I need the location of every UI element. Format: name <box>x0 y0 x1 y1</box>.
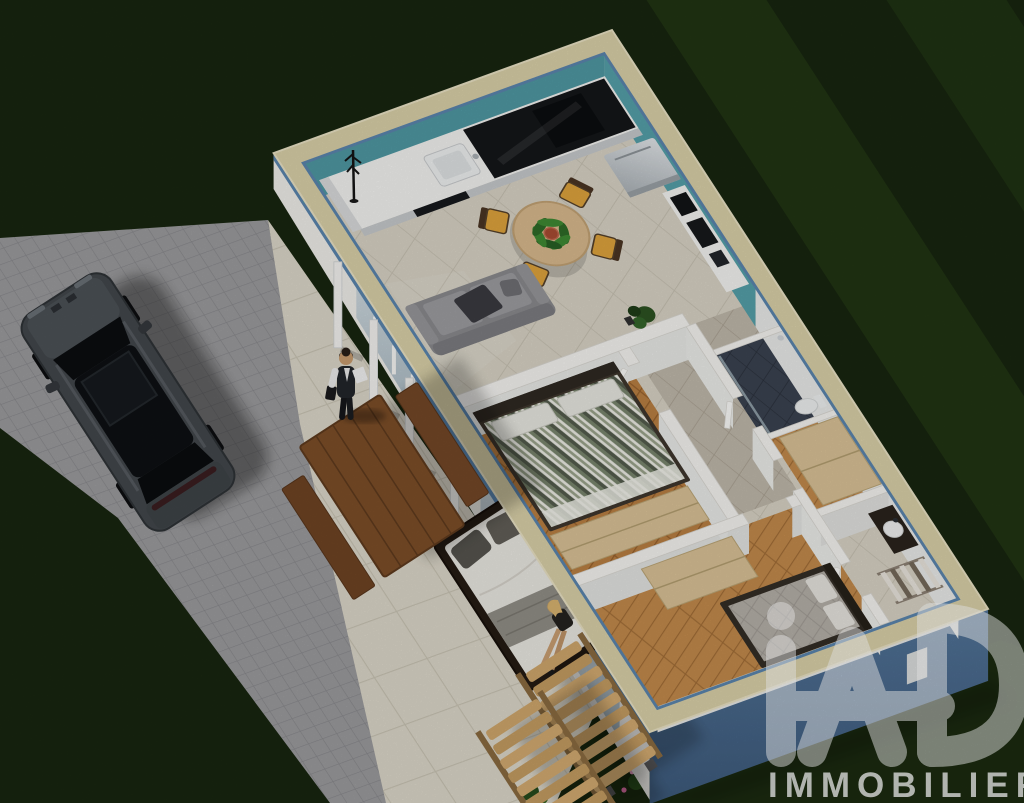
grain-overlay <box>0 0 1024 803</box>
floor-plan-render: iad IMMOBILIER <box>0 0 1024 803</box>
